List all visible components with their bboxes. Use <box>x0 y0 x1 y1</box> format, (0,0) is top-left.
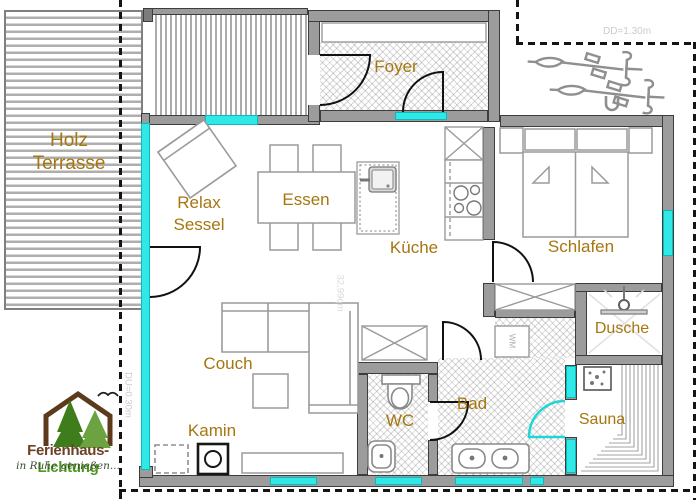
label-kueche: Küche <box>390 238 438 258</box>
label-wc: WC <box>386 411 414 431</box>
double-vanity <box>452 444 529 473</box>
kitchen-sink-unit <box>357 162 399 234</box>
logo-name-part1: Ferienhaus- <box>27 442 109 459</box>
wardrobe-hall <box>362 326 427 360</box>
logo-icon <box>46 393 118 448</box>
sauna-heater <box>584 367 611 390</box>
boundary-topright-v1 <box>516 0 519 44</box>
label-sauna: Sauna <box>579 411 625 429</box>
label-terrace-2: Terrasse <box>33 153 106 175</box>
shower-head-icon <box>601 286 647 314</box>
toilet <box>382 375 420 409</box>
door-bath <box>443 322 481 360</box>
label-relax-2: Sessel <box>173 215 224 235</box>
label-dusche: Dusche <box>595 320 649 338</box>
bird-icon <box>98 393 118 396</box>
pillow <box>577 129 627 150</box>
boundary-left <box>119 0 122 500</box>
chair <box>270 145 298 173</box>
pillow <box>525 129 575 150</box>
hearth-area <box>155 445 188 473</box>
kitchen-counter <box>445 127 483 240</box>
label-essen: Essen <box>282 190 329 210</box>
wc-sink <box>368 441 395 472</box>
label-bad: Bad <box>457 394 487 414</box>
floor-plan: Holz Terrasse Foyer Relax Sessel Essen K… <box>0 0 700 500</box>
wardrobe-bedroom <box>495 284 575 310</box>
nightstand <box>500 128 523 153</box>
chair <box>313 145 341 173</box>
door-foyer-entrance <box>320 55 370 105</box>
bicycle-icon <box>527 47 644 86</box>
annotation-area: 32,99qm <box>335 275 346 312</box>
annotation-dd: DD=1.30m <box>603 26 651 37</box>
label-terrace-1: Holz <box>50 130 88 152</box>
boundary-right <box>693 42 696 500</box>
door-terrace <box>150 247 200 297</box>
annotation-wm: WM <box>508 334 517 348</box>
double-bed <box>500 128 652 237</box>
nightstand <box>629 128 652 153</box>
chair <box>270 222 298 250</box>
fireplace-stove <box>198 444 228 474</box>
chair <box>313 222 341 250</box>
door-sauna-glass <box>529 401 565 437</box>
boundary-bottom <box>119 489 696 492</box>
boundary-topright-h <box>516 42 696 45</box>
door-bedroom <box>493 242 533 282</box>
foyer-closet <box>322 23 486 42</box>
door-foyer-living <box>403 72 443 112</box>
label-schlafen: Schlafen <box>548 237 614 257</box>
logo-tagline: in Ruhe genießen... <box>2 460 134 472</box>
ottoman <box>253 374 288 408</box>
label-kamin: Kamin <box>188 421 236 441</box>
annotation-du: DU=0.30m <box>123 372 134 418</box>
label-couch: Couch <box>203 354 252 374</box>
relax-armchair <box>158 120 236 198</box>
label-foyer: Foyer <box>374 57 417 77</box>
sideboard <box>242 453 343 473</box>
label-relax-1: Relax <box>177 193 220 213</box>
